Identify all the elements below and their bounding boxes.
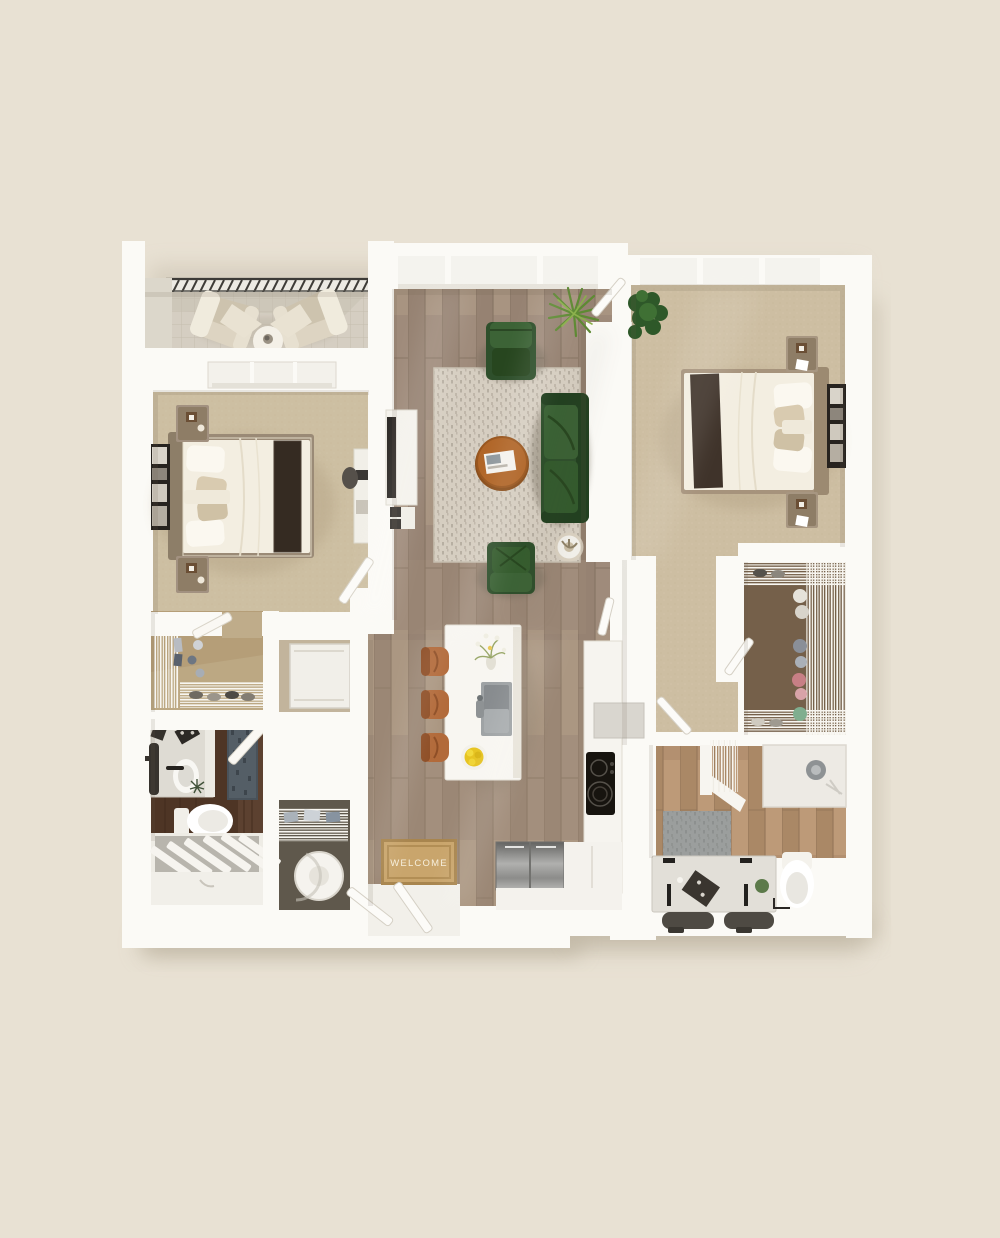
svg-text:WELCOME: WELCOME xyxy=(390,858,448,869)
